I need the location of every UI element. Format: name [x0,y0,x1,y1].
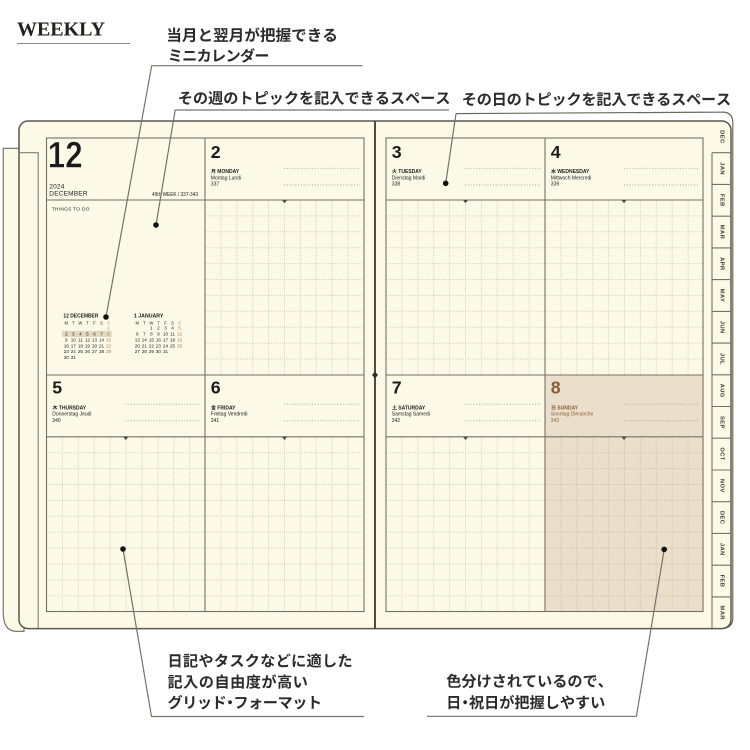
svg-text:10: 10 [163,331,169,336]
svg-text:18: 18 [170,337,176,342]
svg-text:3: 3 [164,326,167,331]
svg-text:338: 338 [392,182,401,188]
svg-text:26: 26 [177,343,183,348]
svg-text:SEP: SEP [719,416,725,429]
svg-text:FEB: FEB [719,194,725,207]
svg-text:24: 24 [71,349,77,354]
svg-text:12 DECEMBER: 12 DECEMBER [63,314,98,320]
svg-text:26: 26 [85,349,91,354]
svg-text:4: 4 [551,142,561,162]
svg-text:342: 342 [392,418,401,424]
svg-text:DECEMBER: DECEMBER [49,190,88,197]
svg-text:APR: APR [719,257,725,271]
svg-text:2: 2 [211,142,221,162]
svg-text:24: 24 [163,343,169,348]
svg-text:MONDAY: MONDAY [217,169,239,175]
svg-text:10: 10 [71,337,77,342]
svg-text:25: 25 [170,343,176,348]
svg-text:21: 21 [99,343,105,348]
svg-text:23: 23 [156,343,162,348]
svg-text:NOV: NOV [719,479,725,493]
svg-text:Samstag Samedi: Samstag Samedi [392,412,430,418]
svg-text:1: 1 [150,326,153,331]
svg-text:3: 3 [72,331,75,336]
svg-text:31: 31 [71,355,77,360]
svg-text:30: 30 [64,355,70,360]
svg-text:W: W [78,320,82,325]
svg-text:MAR: MAR [719,605,725,620]
svg-text:JUL: JUL [719,353,725,365]
svg-text:339: 339 [551,182,560,188]
svg-text:12: 12 [177,331,183,336]
svg-text:13: 13 [135,337,141,342]
svg-text:8: 8 [150,331,153,336]
svg-text:Donnerstag Jeudi: Donnerstag Jeudi [52,412,91,418]
svg-text:27: 27 [92,349,98,354]
svg-text:8: 8 [107,331,110,336]
svg-text:THURSDAY: THURSDAY [59,405,87,411]
svg-text:22: 22 [106,343,112,348]
svg-text:4: 4 [79,331,82,336]
svg-text:1 JANUARY: 1 JANUARY [134,314,164,320]
svg-text:5: 5 [86,331,89,336]
svg-text:12: 12 [85,337,91,342]
svg-text:FEB: FEB [719,575,725,588]
svg-text:15: 15 [149,337,155,342]
svg-text:20: 20 [92,343,98,348]
svg-text:9: 9 [157,331,160,336]
svg-text:6: 6 [136,331,139,336]
svg-text:11: 11 [170,331,175,336]
svg-text:JAN: JAN [719,162,725,175]
svg-text:14: 14 [99,337,105,342]
svg-text:27: 27 [135,349,141,354]
svg-text:Mittwoch Mercredi: Mittwoch Mercredi [551,175,592,181]
svg-text:7: 7 [100,331,103,336]
svg-text:12: 12 [48,133,83,175]
svg-text:17: 17 [71,343,77,348]
svg-text:Montag Lundi: Montag Lundi [211,175,241,181]
svg-text:WEDNESDAY: WEDNESDAY [557,169,590,175]
svg-text:30: 30 [156,349,162,354]
svg-text:7: 7 [143,331,146,336]
svg-text:2: 2 [65,331,68,336]
svg-text:2: 2 [157,326,160,331]
svg-text:T: T [86,320,89,325]
svg-text:340: 340 [52,418,61,424]
svg-text:M: M [136,320,140,325]
svg-text:343: 343 [551,418,560,424]
svg-text:5: 5 [52,377,62,397]
svg-text:18: 18 [78,343,84,348]
svg-text:49th WEEK / 337-343: 49th WEEK / 337-343 [152,192,198,198]
svg-text:6: 6 [211,377,221,397]
svg-text:21: 21 [142,343,148,348]
svg-text:4: 4 [171,326,174,331]
svg-text:11: 11 [78,337,83,342]
svg-text:5: 5 [178,326,181,331]
svg-text:341: 341 [211,418,220,424]
svg-text:14: 14 [142,337,148,342]
svg-text:25: 25 [78,349,84,354]
svg-text:Freitag Vendredi: Freitag Vendredi [211,412,248,418]
svg-text:S: S [100,320,103,325]
svg-text:Sonntag Dimanche: Sonntag Dimanche [551,412,594,418]
svg-text:22: 22 [149,343,155,348]
svg-text:Dienstag Mardi: Dienstag Mardi [392,175,426,181]
svg-text:SUNDAY: SUNDAY [557,405,578,411]
svg-text:8: 8 [551,377,561,397]
svg-text:7: 7 [392,377,402,397]
svg-text:28: 28 [142,349,148,354]
svg-text:20: 20 [135,343,141,348]
svg-text:WEEKLY: WEEKLY [17,20,105,41]
svg-text:13: 13 [92,337,98,342]
svg-text:17: 17 [163,337,169,342]
svg-text:THINGS TO DO: THINGS TO DO [52,207,90,213]
svg-text:F: F [93,320,96,325]
svg-text:MAR: MAR [719,225,725,240]
svg-text:JUN: JUN [719,321,725,334]
svg-text:16: 16 [156,337,162,342]
svg-text:23: 23 [64,349,70,354]
svg-text:337: 337 [211,182,220,188]
svg-text:T: T [72,320,75,325]
svg-text:JAN: JAN [719,543,725,556]
svg-text:DEC: DEC [719,130,725,144]
svg-text:AUG: AUG [719,384,725,398]
svg-text:6: 6 [93,331,96,336]
svg-text:TUESDAY: TUESDAY [398,169,422,175]
svg-text:31: 31 [163,349,169,354]
svg-text:DEC: DEC [719,511,725,525]
svg-text:M: M [65,320,69,325]
svg-text:OCT: OCT [719,447,725,460]
svg-text:1: 1 [107,326,110,331]
svg-text:19: 19 [177,337,183,342]
svg-text:15: 15 [106,337,112,342]
svg-text:T: T [143,320,146,325]
svg-text:28: 28 [99,349,105,354]
svg-text:19: 19 [85,343,91,348]
svg-text:9: 9 [65,337,68,342]
svg-text:16: 16 [64,343,70,348]
svg-text:SATURDAY: SATURDAY [398,405,426,411]
svg-text:29: 29 [106,349,112,354]
svg-text:29: 29 [149,349,155,354]
svg-text:3: 3 [392,142,402,162]
svg-text:FRIDAY: FRIDAY [217,405,236,411]
svg-text:MAY: MAY [719,289,725,303]
